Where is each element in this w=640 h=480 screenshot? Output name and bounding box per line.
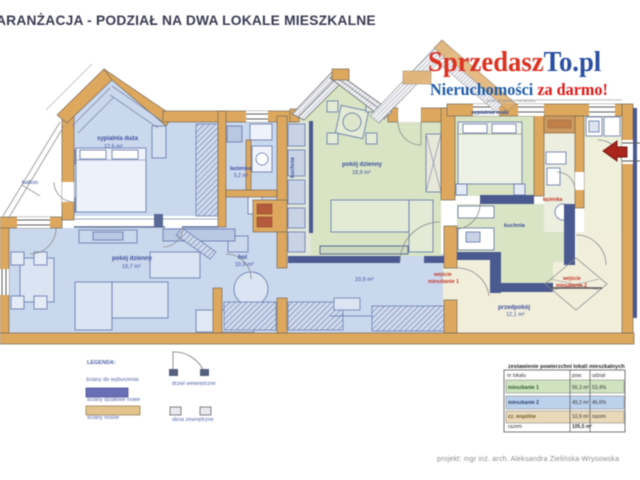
svg-text:mieszkanie 1: mieszkanie 1 xyxy=(428,279,459,285)
svg-text:wejście: wejście xyxy=(562,276,581,282)
svg-text:kuchnia: kuchnia xyxy=(290,156,296,178)
svg-text:zestawienie powierzchni lokali: zestawienie powierzchni lokali mieszkaln… xyxy=(508,364,625,370)
svg-text:49,2 m²: 49,2 m² xyxy=(572,400,589,406)
svg-text:5,2 m²: 5,2 m² xyxy=(234,173,249,179)
svg-text:balkon: balkon xyxy=(22,180,38,186)
svg-text:46,6%: 46,6% xyxy=(592,400,607,406)
svg-text:105,5 m²: 105,5 m² xyxy=(572,424,592,430)
svg-text:kuchnia: kuchnia xyxy=(504,223,526,229)
svg-text:pokój dzienny: pokój dzienny xyxy=(342,162,383,168)
svg-text:12,1 m²: 12,1 m² xyxy=(506,312,525,318)
svg-text:nr lokalu: nr lokalu xyxy=(507,373,526,379)
svg-text:razem: razem xyxy=(508,424,522,430)
svg-text:wejście: wejście xyxy=(433,272,452,278)
svg-text:pow.: pow. xyxy=(572,373,582,379)
svg-text:pokój dzienny: pokój dzienny xyxy=(112,256,153,262)
svg-text:mieszkanie 1: mieszkanie 1 xyxy=(508,385,539,391)
svg-text:19,7 m²: 19,7 m² xyxy=(122,264,141,270)
svg-text:cz. wspólne: cz. wspólne xyxy=(508,414,536,420)
svg-text:udział: udział xyxy=(592,373,606,379)
svg-text:sypialnia duża: sypialnia duża xyxy=(97,136,139,142)
svg-text:56,3 m²: 56,3 m² xyxy=(572,385,589,391)
svg-text:sypialnia mała: sypialnia mała xyxy=(471,110,510,116)
svg-text:53,4%: 53,4% xyxy=(592,385,607,391)
svg-text:przedpokój: przedpokój xyxy=(498,305,530,311)
svg-text:10,9 m²: 10,9 m² xyxy=(235,262,254,268)
svg-text:łazienka: łazienka xyxy=(543,197,563,203)
svg-text:łazienka: łazienka xyxy=(230,166,252,172)
svg-text:10,9 m²: 10,9 m² xyxy=(355,277,374,283)
svg-text:10,9 m²: 10,9 m² xyxy=(572,414,589,420)
svg-text:mieszkanie 2: mieszkanie 2 xyxy=(556,283,587,289)
svg-text:18,9 m²: 18,9 m² xyxy=(352,170,371,176)
svg-text:17,5 m²: 17,5 m² xyxy=(104,144,123,150)
svg-text:razem: razem xyxy=(592,414,606,420)
svg-text:hol: hol xyxy=(238,255,247,261)
svg-text:mieszkanie 2: mieszkanie 2 xyxy=(508,400,539,406)
